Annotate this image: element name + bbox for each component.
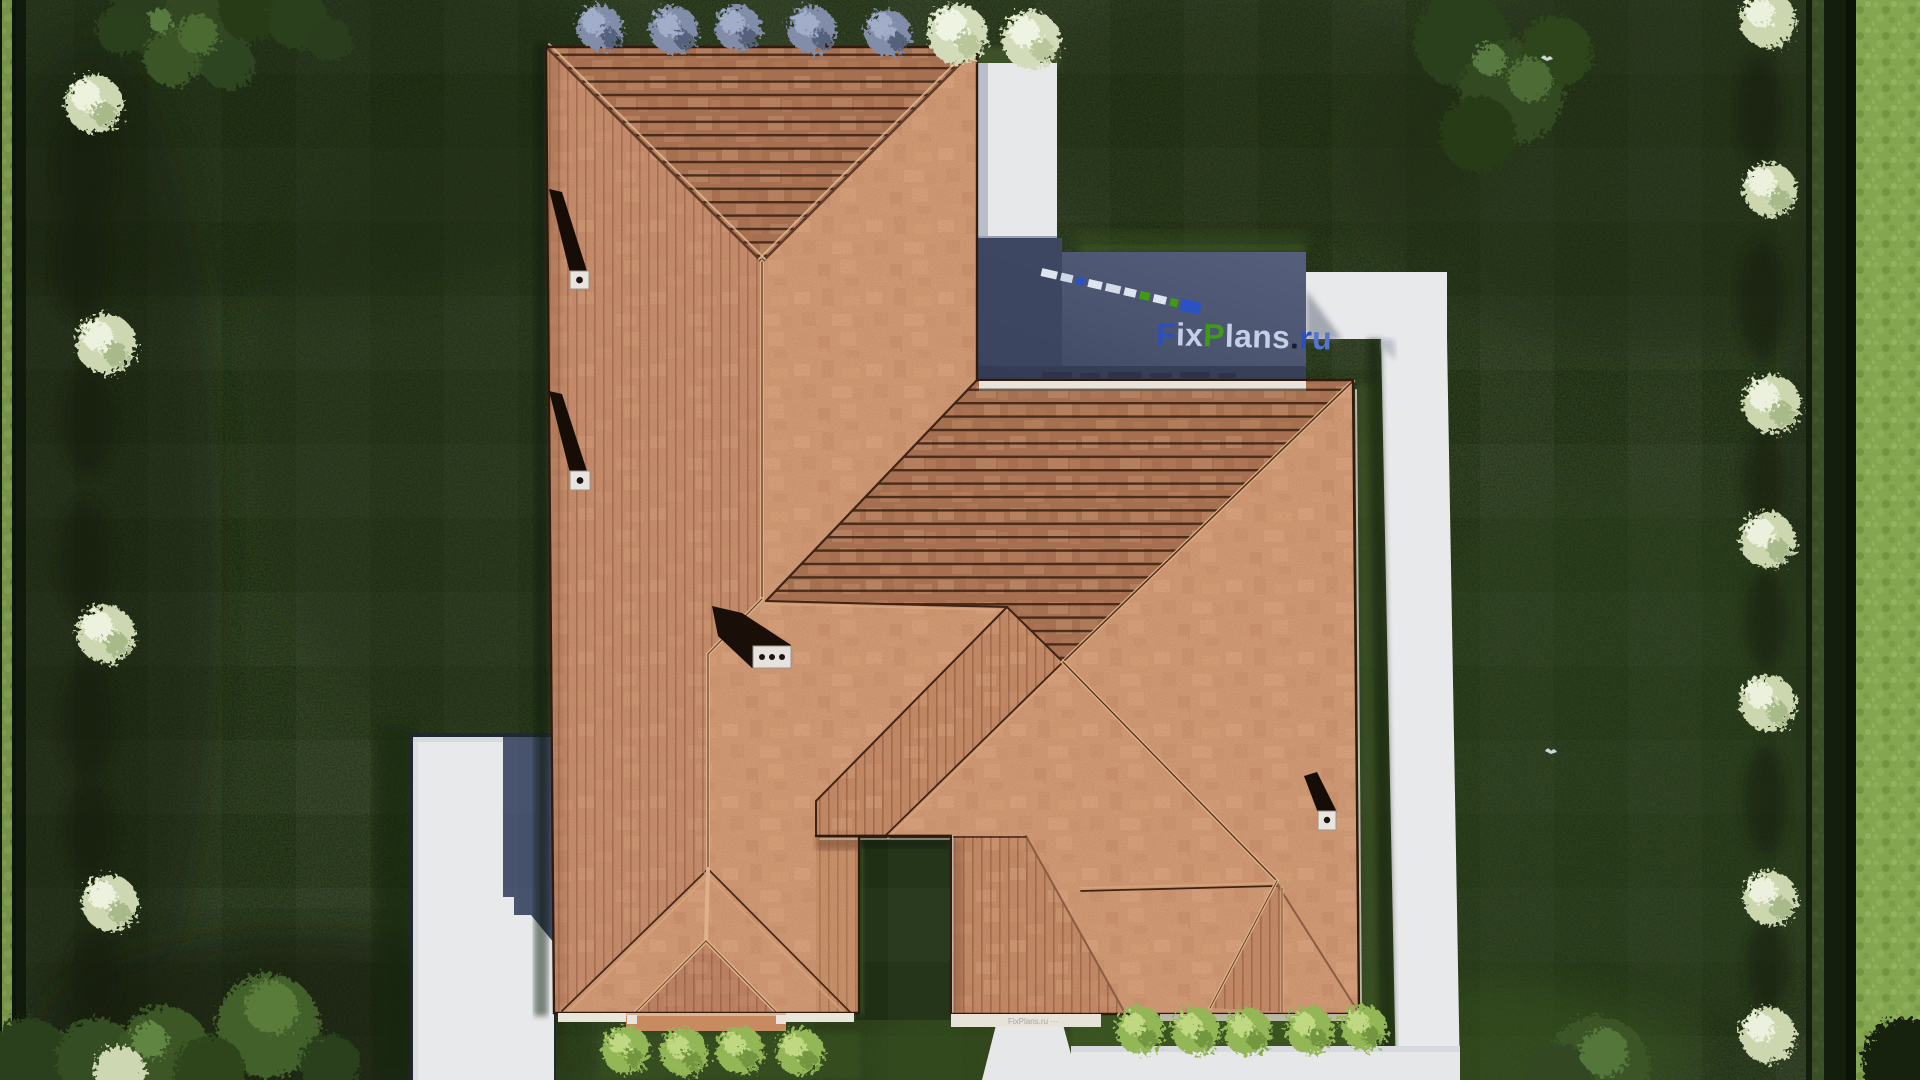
svg-text:FixPlans.ru: FixPlans.ru [1156,316,1333,357]
svg-text:FixPlans.ru ···: FixPlans.ru ··· [1008,1017,1058,1026]
